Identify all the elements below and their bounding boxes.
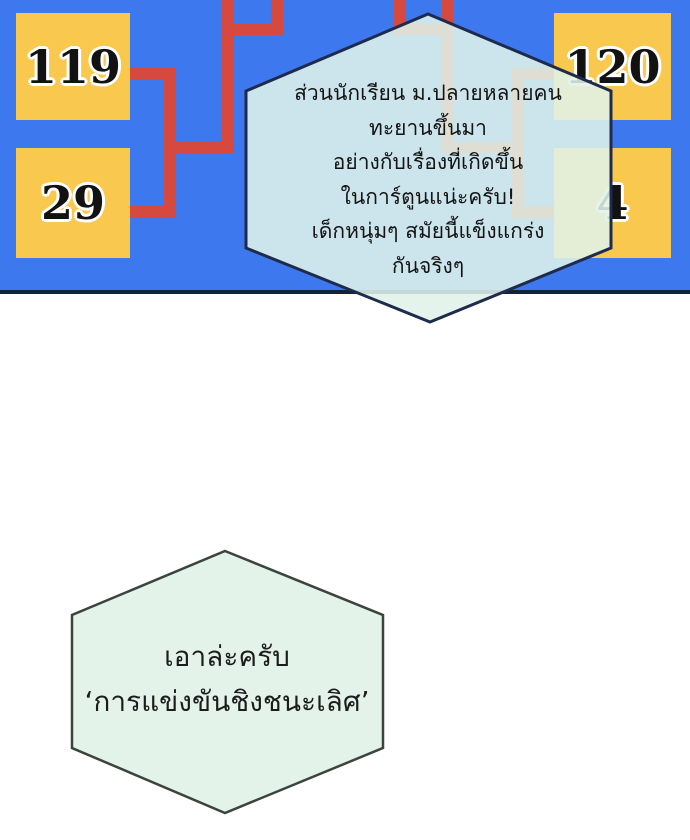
- speech-line: ส่วนนักเรียน ม.ปลายหลายคน: [248, 76, 608, 111]
- seed-number: 119: [25, 44, 121, 90]
- speech-line: ‘การแข่งขันชิงชนะเลิศ’: [57, 679, 397, 724]
- seed-number: 29: [41, 180, 105, 226]
- bracket-line: [221, 0, 233, 153]
- speech-bubble-top-text: ส่วนนักเรียน ม.ปลายหลายคน ทะยานขึ้นมา อย…: [248, 76, 608, 283]
- bracket-line: [271, 0, 283, 35]
- speech-line: เด็กหนุ่มๆ สมัยนี้แข็งแกร่ง: [248, 214, 608, 249]
- speech-line: กันจริงๆ: [248, 249, 608, 284]
- speech-line: อย่างกับเรื่องที่เกิดขึ้น: [248, 145, 608, 180]
- comic-page: 119 29 120 4 ส่วนนักเรียน ม.ปลายหลายคน ท…: [0, 0, 690, 840]
- speech-bubble-bottom-text: เอาล่ะครับ ‘การแข่งขันชิงชนะเลิศ’: [57, 634, 397, 724]
- match-box-119: 119: [16, 13, 130, 120]
- match-box-29: 29: [16, 148, 130, 258]
- speech-line: เอาล่ะครับ: [57, 634, 397, 679]
- bracket-line: [130, 206, 176, 218]
- speech-line: ในการ์ตูนแน่ะครับ!: [248, 180, 608, 215]
- bracket-line: [394, 0, 406, 35]
- speech-line: ทะยานขึ้นมา: [248, 111, 608, 146]
